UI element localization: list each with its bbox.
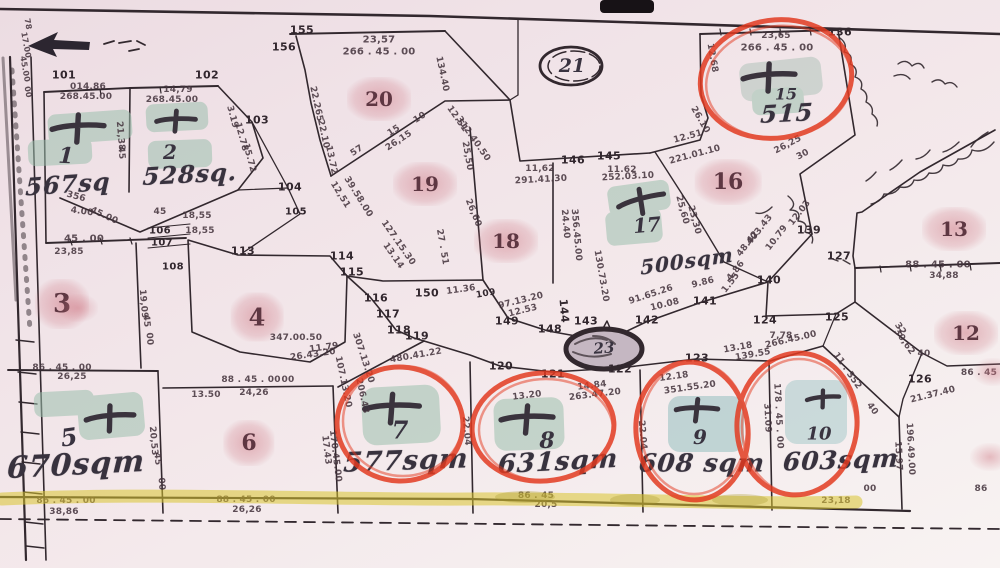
- red-circle-lot-15: [693, 10, 860, 148]
- red-circle-lot-8: [468, 368, 617, 486]
- red-circle-lot-10: [731, 348, 863, 500]
- plat-map-scan: 1011021031041051061071081091131141151161…: [0, 0, 1000, 568]
- pen-overlays: [0, 0, 1000, 568]
- red-circle-lot-7: [334, 364, 466, 484]
